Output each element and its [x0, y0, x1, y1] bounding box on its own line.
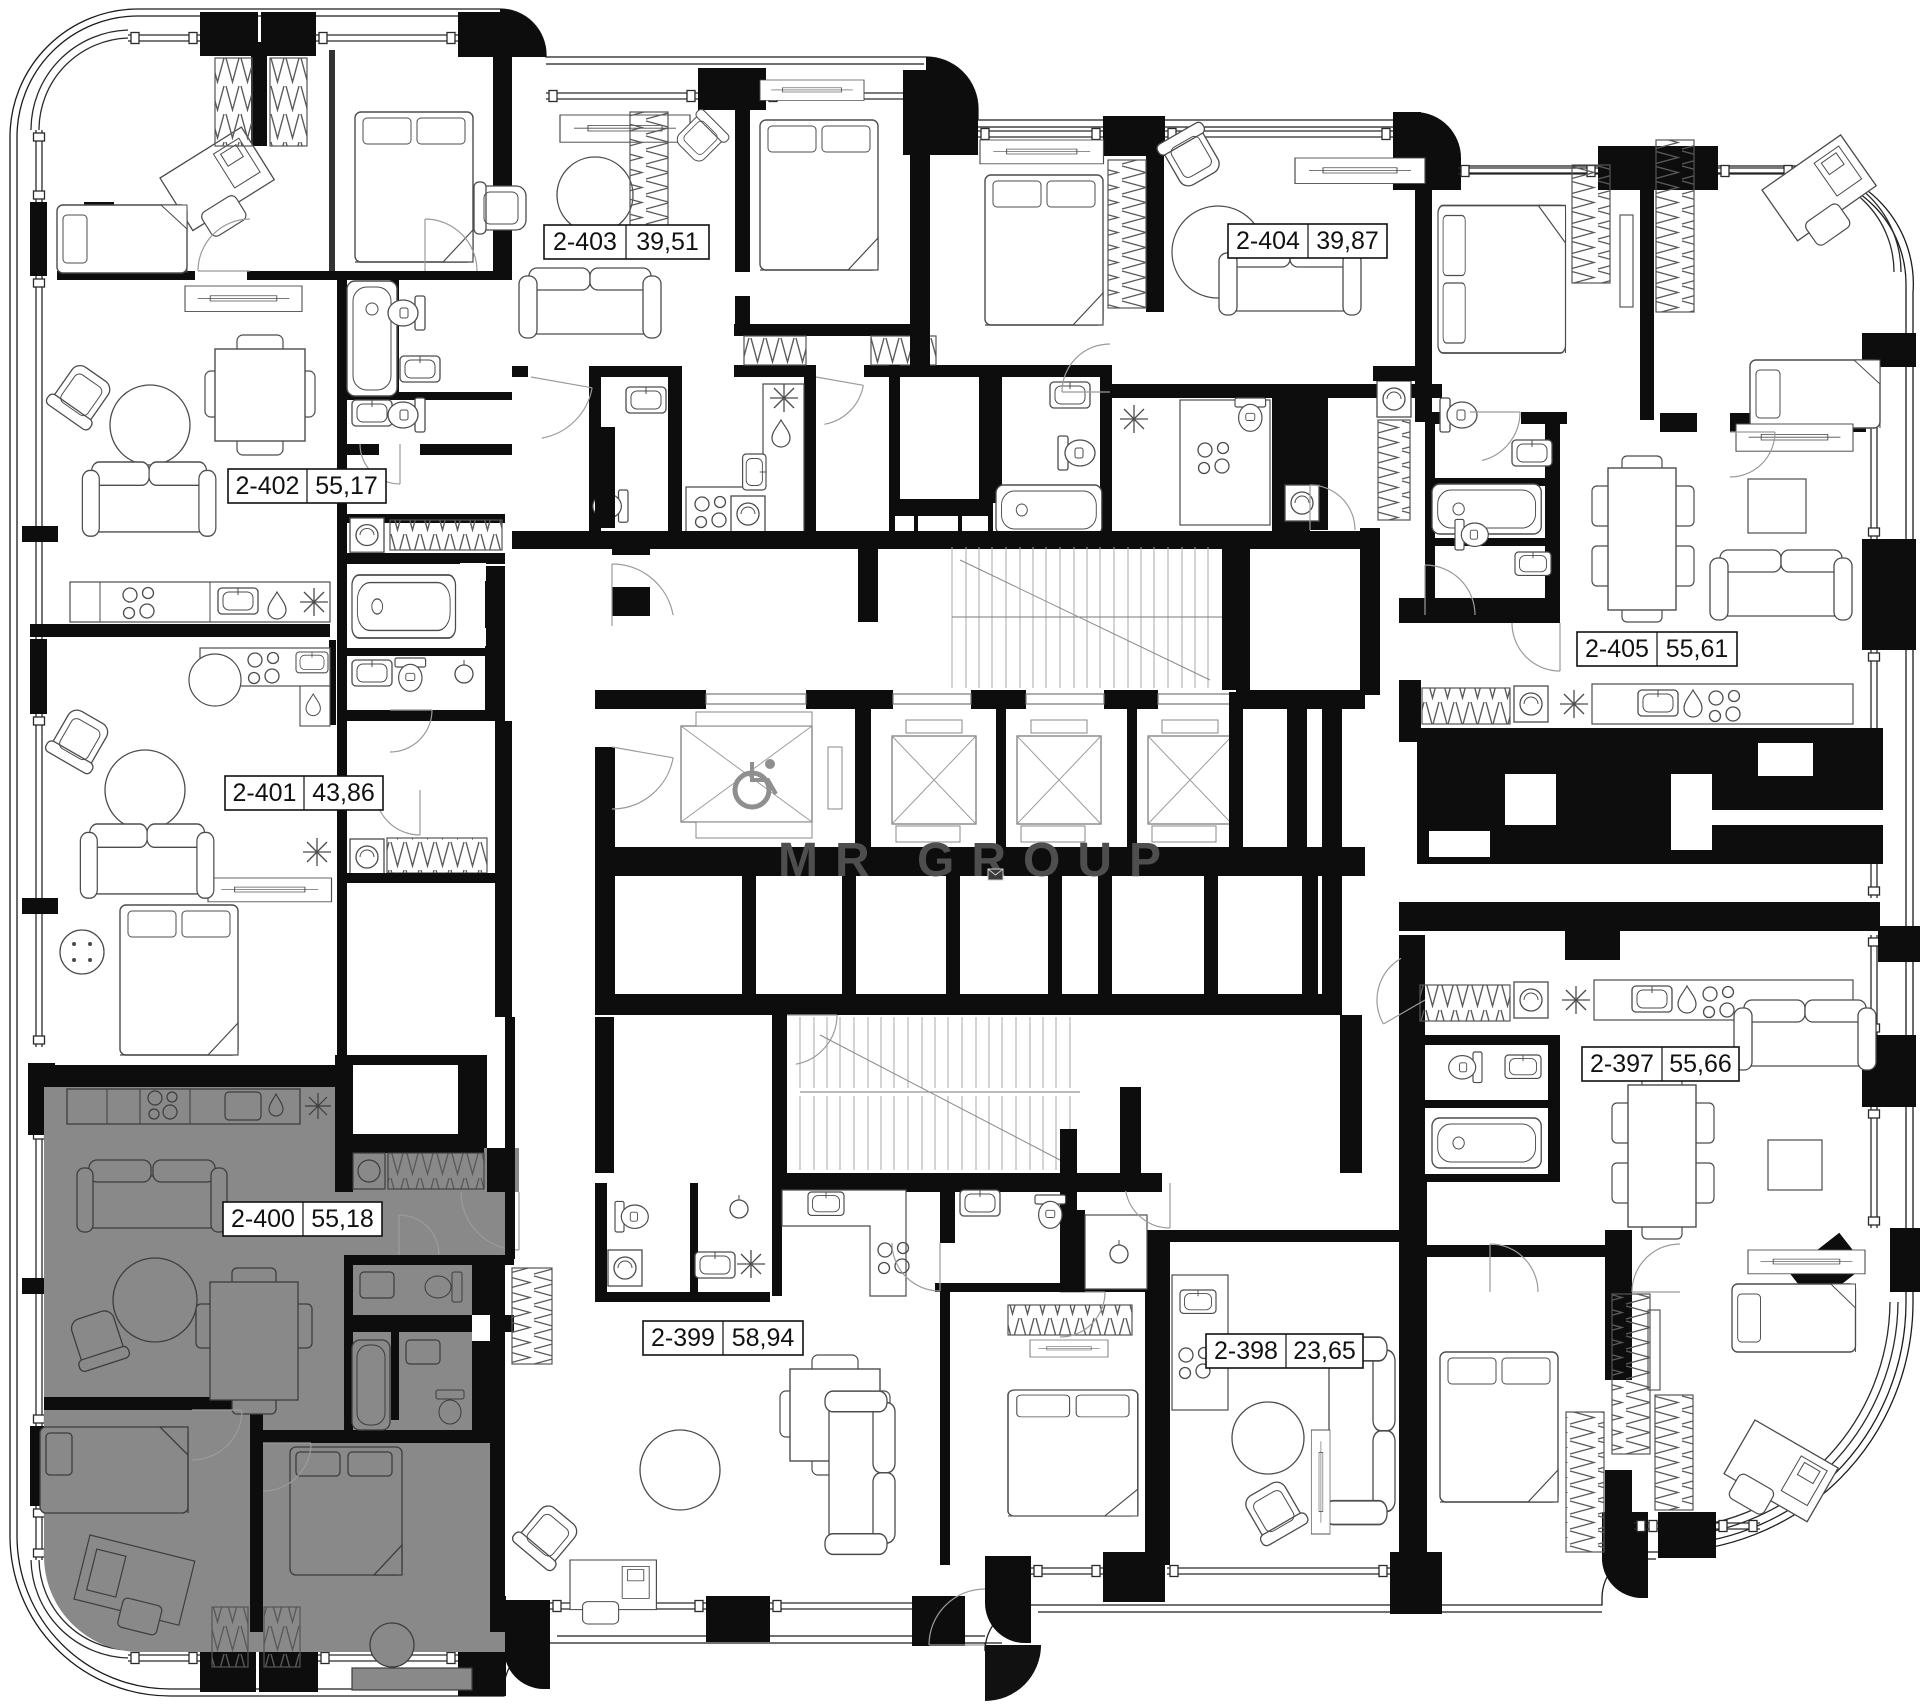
svg-text:2-398: 2-398 [1214, 1337, 1278, 1365]
svg-text:55,66: 55,66 [1669, 1050, 1732, 1078]
svg-text:2-397: 2-397 [1590, 1050, 1654, 1078]
svg-text:39,51: 39,51 [636, 228, 699, 256]
svg-text:MR GROUP: MR GROUP [778, 834, 1178, 887]
svg-text:23,65: 23,65 [1293, 1337, 1356, 1365]
svg-text:2-401: 2-401 [233, 779, 297, 807]
svg-text:2-403: 2-403 [553, 228, 617, 256]
svg-text:55,18: 55,18 [311, 1205, 374, 1233]
svg-text:2-402: 2-402 [236, 472, 300, 500]
svg-text:2-405: 2-405 [1585, 635, 1649, 663]
svg-text:39,87: 39,87 [1316, 227, 1379, 255]
svg-text:2-404: 2-404 [1236, 227, 1300, 255]
svg-text:43,86: 43,86 [312, 779, 375, 807]
svg-text:58,94: 58,94 [732, 1324, 795, 1352]
svg-text:2-399: 2-399 [651, 1324, 715, 1352]
svg-text:2-400: 2-400 [231, 1205, 295, 1233]
svg-text:55,61: 55,61 [1666, 635, 1729, 663]
svg-text:55,17: 55,17 [315, 472, 378, 500]
